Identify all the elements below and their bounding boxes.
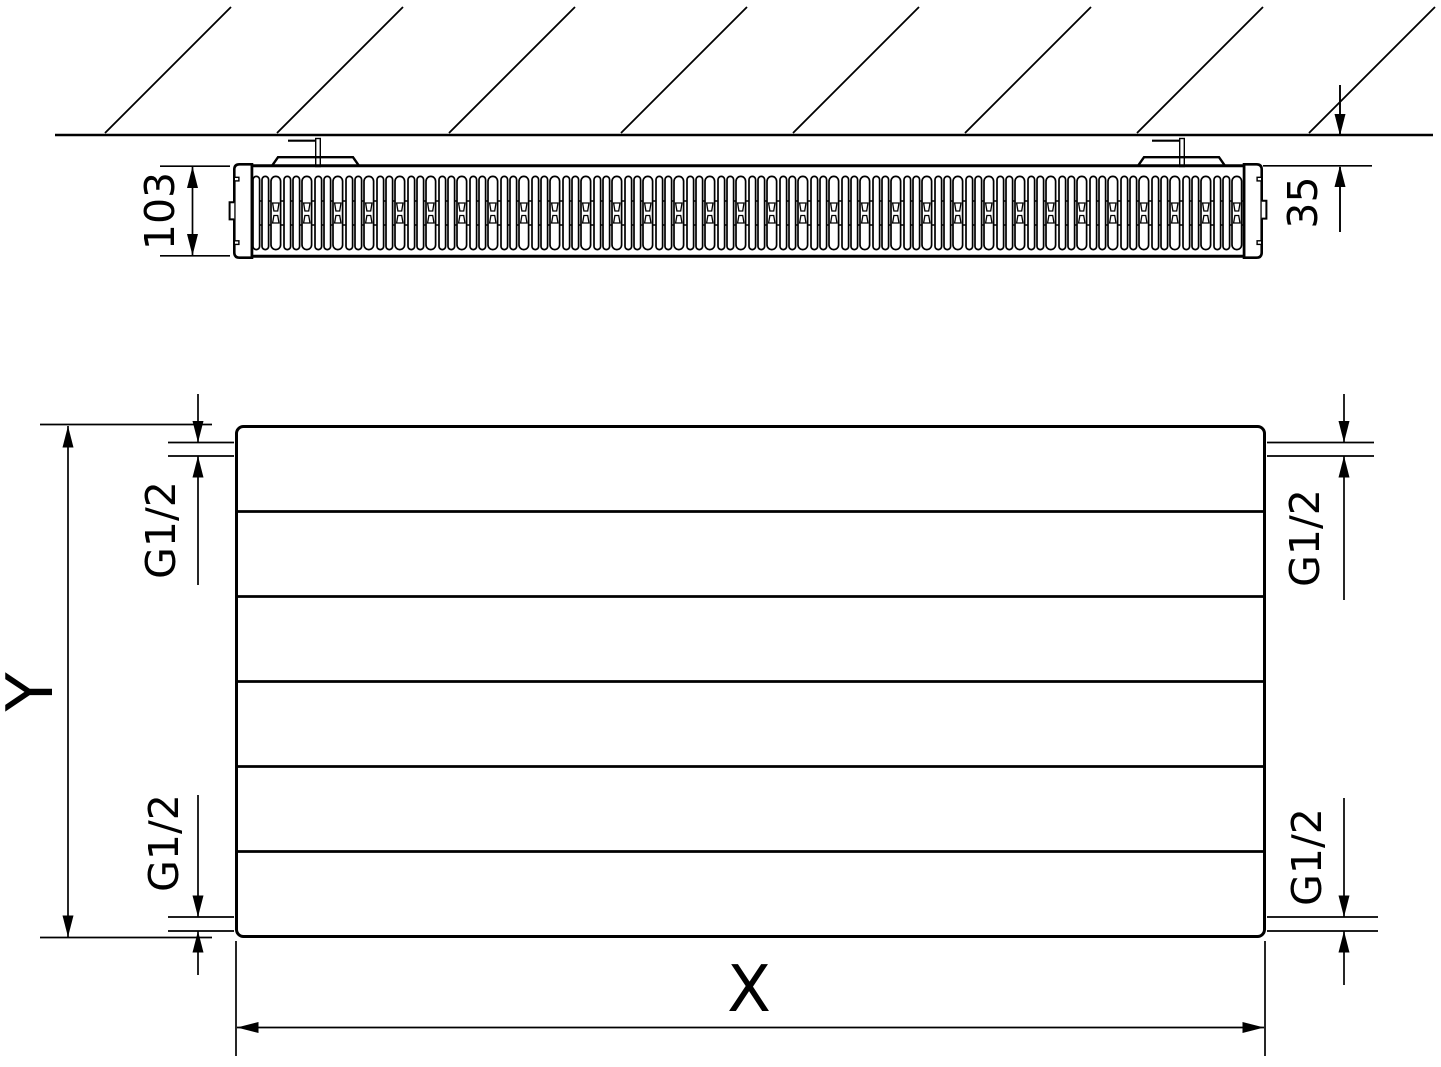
radiator-top-view	[230, 164, 1267, 257]
wall-gap-dimension-label: 35	[1279, 176, 1327, 228]
connection-label-top-right: G1/2	[1281, 489, 1329, 587]
height-dimension-label: Y	[0, 672, 68, 713]
radiator-front-view	[237, 427, 1265, 937]
width-dimension-label: X	[727, 953, 771, 1027]
radiator-technical-drawing: 103 35 G1/2 G1/2	[0, 0, 1441, 1067]
depth-dimension-label: 103	[136, 172, 184, 250]
connection-label-top-left: G1/2	[137, 481, 185, 579]
convector-fins	[252, 176, 1244, 251]
connection-label-bottom-left: G1/2	[140, 794, 188, 892]
connection-label-bottom-right: G1/2	[1283, 808, 1331, 906]
